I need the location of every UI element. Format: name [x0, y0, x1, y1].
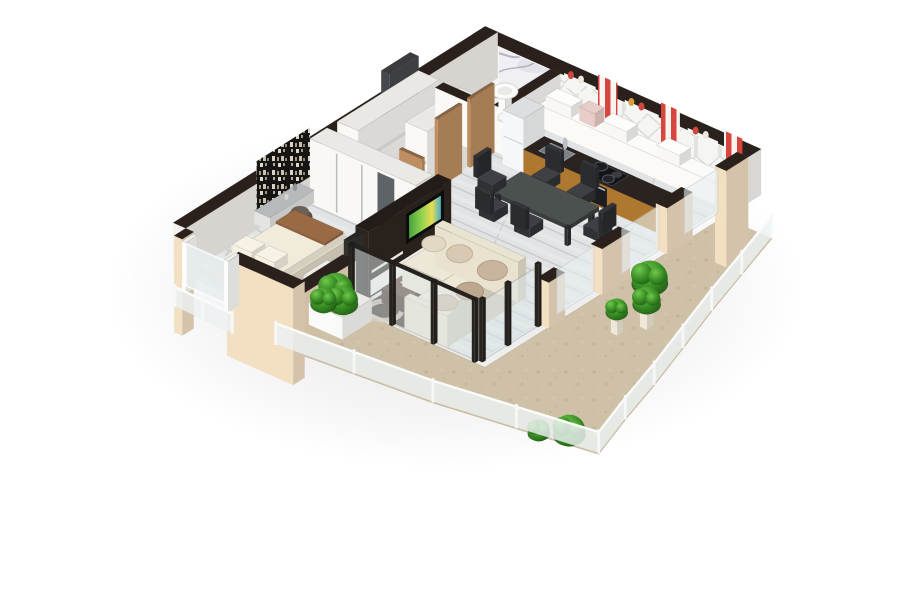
shelf-jar [568, 71, 574, 79]
terrace-topiary [605, 298, 628, 320]
sliding-door-post [505, 280, 512, 346]
shelf-jar [628, 98, 634, 106]
vanity-bottle [293, 183, 297, 191]
table-leg [565, 224, 572, 246]
sink-faucet [563, 137, 568, 149]
vanity-bottle [284, 194, 288, 200]
sofa-pillow [447, 245, 473, 263]
floorplan-render: 3D isometric render of a one-bedroom apa… [0, 0, 900, 600]
wardrobe-divider [361, 165, 363, 225]
sliding-door-post [479, 296, 486, 362]
sliding-door-post [472, 297, 479, 363]
shelf-jar [578, 76, 584, 84]
shelf-jar [638, 103, 644, 111]
sliding-door-post [389, 260, 396, 326]
terrace-topiary [632, 287, 661, 315]
cooking-pot [602, 175, 614, 183]
floorplan-3d-scene [0, 0, 900, 600]
shelf-jar [693, 127, 699, 135]
bedroom-window-jamb [225, 253, 240, 312]
sliding-door-post [431, 279, 438, 345]
wardrobe-divider [336, 153, 338, 213]
shelf-jar [703, 131, 709, 139]
washbasin-bowl-inner [497, 87, 512, 95]
sliding-door-post [535, 261, 542, 327]
sofa-pillow [422, 236, 446, 252]
planter-bush [310, 287, 337, 313]
sofa-pillow [477, 260, 507, 280]
